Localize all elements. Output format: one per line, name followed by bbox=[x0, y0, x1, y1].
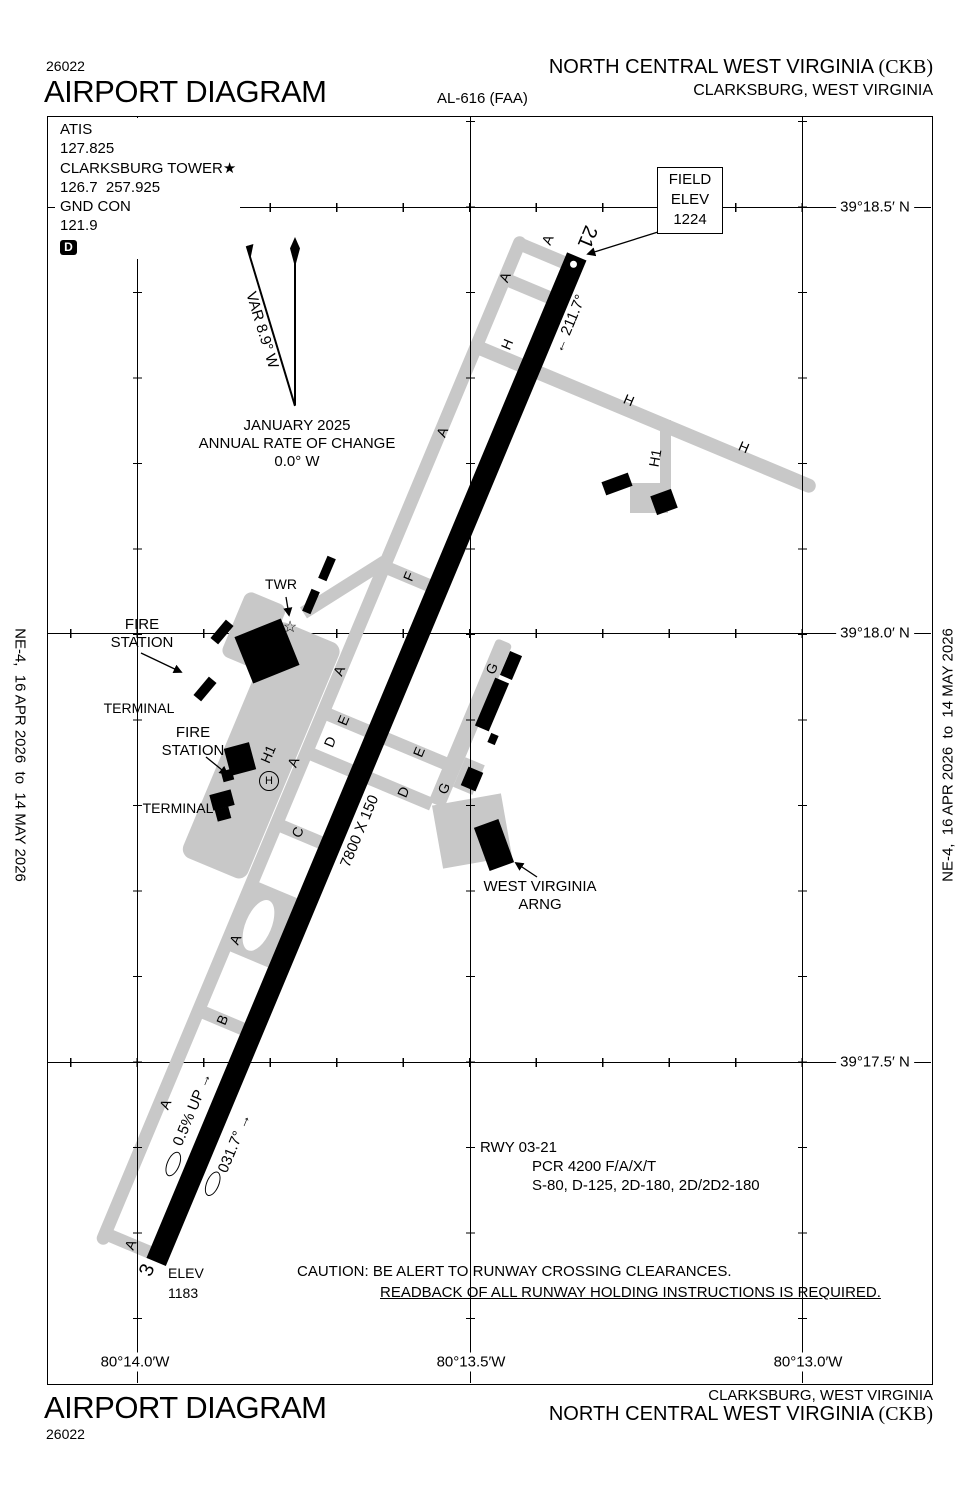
lon-label-3: 80°13.0′W bbox=[770, 1353, 847, 1372]
taxiway-label-e-east: E bbox=[410, 744, 428, 759]
plate-number-bottom: 26022 bbox=[46, 1426, 85, 1442]
effective-dates-right: NE-4, 16 APR 2026 to 14 MAY 2026 bbox=[940, 628, 957, 882]
taxiway-label-h1-ne: H1 bbox=[646, 448, 665, 468]
lat-label-1: 39°18.5′ N bbox=[836, 198, 914, 217]
airport-name-top: NORTH CENTRAL WEST VIRGINIA (CKB) bbox=[549, 56, 933, 79]
arng-label-line1: WEST VIRGINIA bbox=[483, 878, 596, 896]
runway-heading-03: 031.7° → bbox=[215, 1111, 255, 1175]
runway-number-3: 3 bbox=[135, 1261, 161, 1280]
taxiway-label-f: F bbox=[400, 569, 418, 583]
atis-frequency: 127.825 bbox=[60, 139, 240, 158]
runway-heading-21: ← 211.7° bbox=[550, 292, 589, 355]
tower-star-icon: ☆ bbox=[283, 617, 297, 637]
taxiway-label-a4: A bbox=[330, 663, 348, 678]
terminal-label-2: TERMINAL bbox=[143, 800, 214, 816]
city-bottom: CLARKSBURG, WEST VIRGINIA bbox=[708, 1387, 933, 1404]
taxiway-label-a7: A bbox=[156, 1097, 174, 1112]
airport-icao: (CKB) bbox=[879, 56, 933, 78]
runway3-elevation: ELEV 1183 bbox=[168, 1263, 204, 1303]
ground-frequency: 121.9 bbox=[60, 216, 240, 235]
fire-station-2-line2: STATION bbox=[162, 742, 225, 760]
taxiway-label-a2: A bbox=[495, 270, 513, 285]
airport-name-bottom-text: NORTH CENTRAL WEST VIRGINIA bbox=[549, 1403, 879, 1425]
taxiway-label-g-east: G bbox=[434, 780, 453, 796]
fire-station-2-label: FIRE STATION bbox=[162, 724, 225, 760]
lon-label-1: 80°14.0′W bbox=[97, 1353, 174, 1372]
lat-label-3: 39°17.5′ N bbox=[836, 1053, 914, 1072]
airport-name-text: NORTH CENTRAL WEST VIRGINIA bbox=[549, 56, 879, 78]
lat-label-2: 39°18.0′ N bbox=[836, 624, 914, 643]
taxiway-label-c: C bbox=[288, 824, 307, 840]
airport-name-bottom: NORTH CENTRAL WEST VIRGINIA (CKB) bbox=[549, 1403, 933, 1426]
fire-station-1-line1: FIRE bbox=[111, 616, 174, 634]
taxiway-label-d-east: D bbox=[394, 784, 413, 800]
field-elev-line1: FIELD bbox=[658, 170, 722, 190]
taxiway-label-a5: A bbox=[284, 755, 302, 770]
fire-station-1-label: FIRE STATION bbox=[111, 616, 174, 652]
taxiway-label-h-west: H bbox=[498, 337, 517, 353]
tower-name: CLARKSBURG TOWER★ bbox=[60, 159, 240, 178]
city-top: CLARKSBURG, WEST VIRGINIA bbox=[693, 82, 933, 100]
field-elev-line2: ELEV bbox=[658, 190, 722, 210]
comm-frequencies-box: ATIS 127.825 CLARKSBURG TOWER★ 126.7 257… bbox=[55, 118, 240, 259]
taxiway-label-g-strip: G bbox=[482, 660, 501, 676]
arng-label-line2: ARNG bbox=[483, 896, 596, 914]
airport-icao-bottom: (CKB) bbox=[879, 1403, 933, 1425]
runway3-elev-word: ELEV bbox=[168, 1263, 204, 1283]
taxiway-label-a1: A bbox=[538, 232, 556, 247]
field-elev-value: 1224 bbox=[658, 210, 722, 230]
tower-label: TWR bbox=[265, 576, 297, 592]
tower-name-text: CLARKSBURG TOWER bbox=[60, 160, 223, 177]
arng-label: WEST VIRGINIA ARNG bbox=[483, 878, 596, 914]
atis-label: ATIS bbox=[60, 120, 240, 139]
effective-dates-left: NE-4, 16 APR 2026 to 14 MAY 2026 bbox=[12, 628, 29, 882]
meridian-80-13-0 bbox=[798, 116, 807, 1383]
fire-station-2-line1: FIRE bbox=[162, 724, 225, 742]
taxiway-label-e-west: E bbox=[334, 713, 352, 728]
tower-star-note-icon: ★ bbox=[223, 160, 236, 177]
page-title: AIRPORT DIAGRAM bbox=[44, 74, 326, 110]
helipad-circle-h-icon: H bbox=[259, 771, 279, 791]
taxiway-label-a8: A bbox=[121, 1237, 139, 1252]
fire-station-1-line2: STATION bbox=[111, 634, 174, 652]
runway-gradient-label: 0.5% UP → bbox=[170, 1070, 216, 1149]
runway3-elev-value: 1183 bbox=[168, 1283, 204, 1303]
terminal-label-1: TERMINAL bbox=[104, 700, 175, 716]
taxiway-label-a6: A bbox=[226, 932, 244, 947]
runway-dimensions-label: 7800 X 150 bbox=[337, 792, 382, 869]
field-elevation-box: FIELD ELEV 1224 bbox=[657, 167, 723, 234]
taxiway-label-d-west: D bbox=[321, 734, 340, 750]
airport-diagram-sheet: 26022 AIRPORT DIAGRAM AL-616 (FAA) NORTH… bbox=[0, 0, 978, 1500]
page-title-bottom: AIRPORT DIAGRAM bbox=[44, 1390, 326, 1426]
ground-label: GND CON bbox=[60, 197, 240, 216]
taxiway-label-a3: A bbox=[433, 425, 451, 440]
datis-badge-icon: D bbox=[60, 240, 77, 255]
taxiway-label-b: B bbox=[213, 1012, 231, 1027]
runway-number-21: 21 bbox=[572, 222, 602, 251]
plate-number-top: 26022 bbox=[46, 58, 85, 74]
true-north-line bbox=[294, 262, 296, 405]
procedure-id: AL-616 (FAA) bbox=[437, 90, 528, 107]
tower-frequencies: 126.7 257.925 bbox=[60, 178, 240, 197]
